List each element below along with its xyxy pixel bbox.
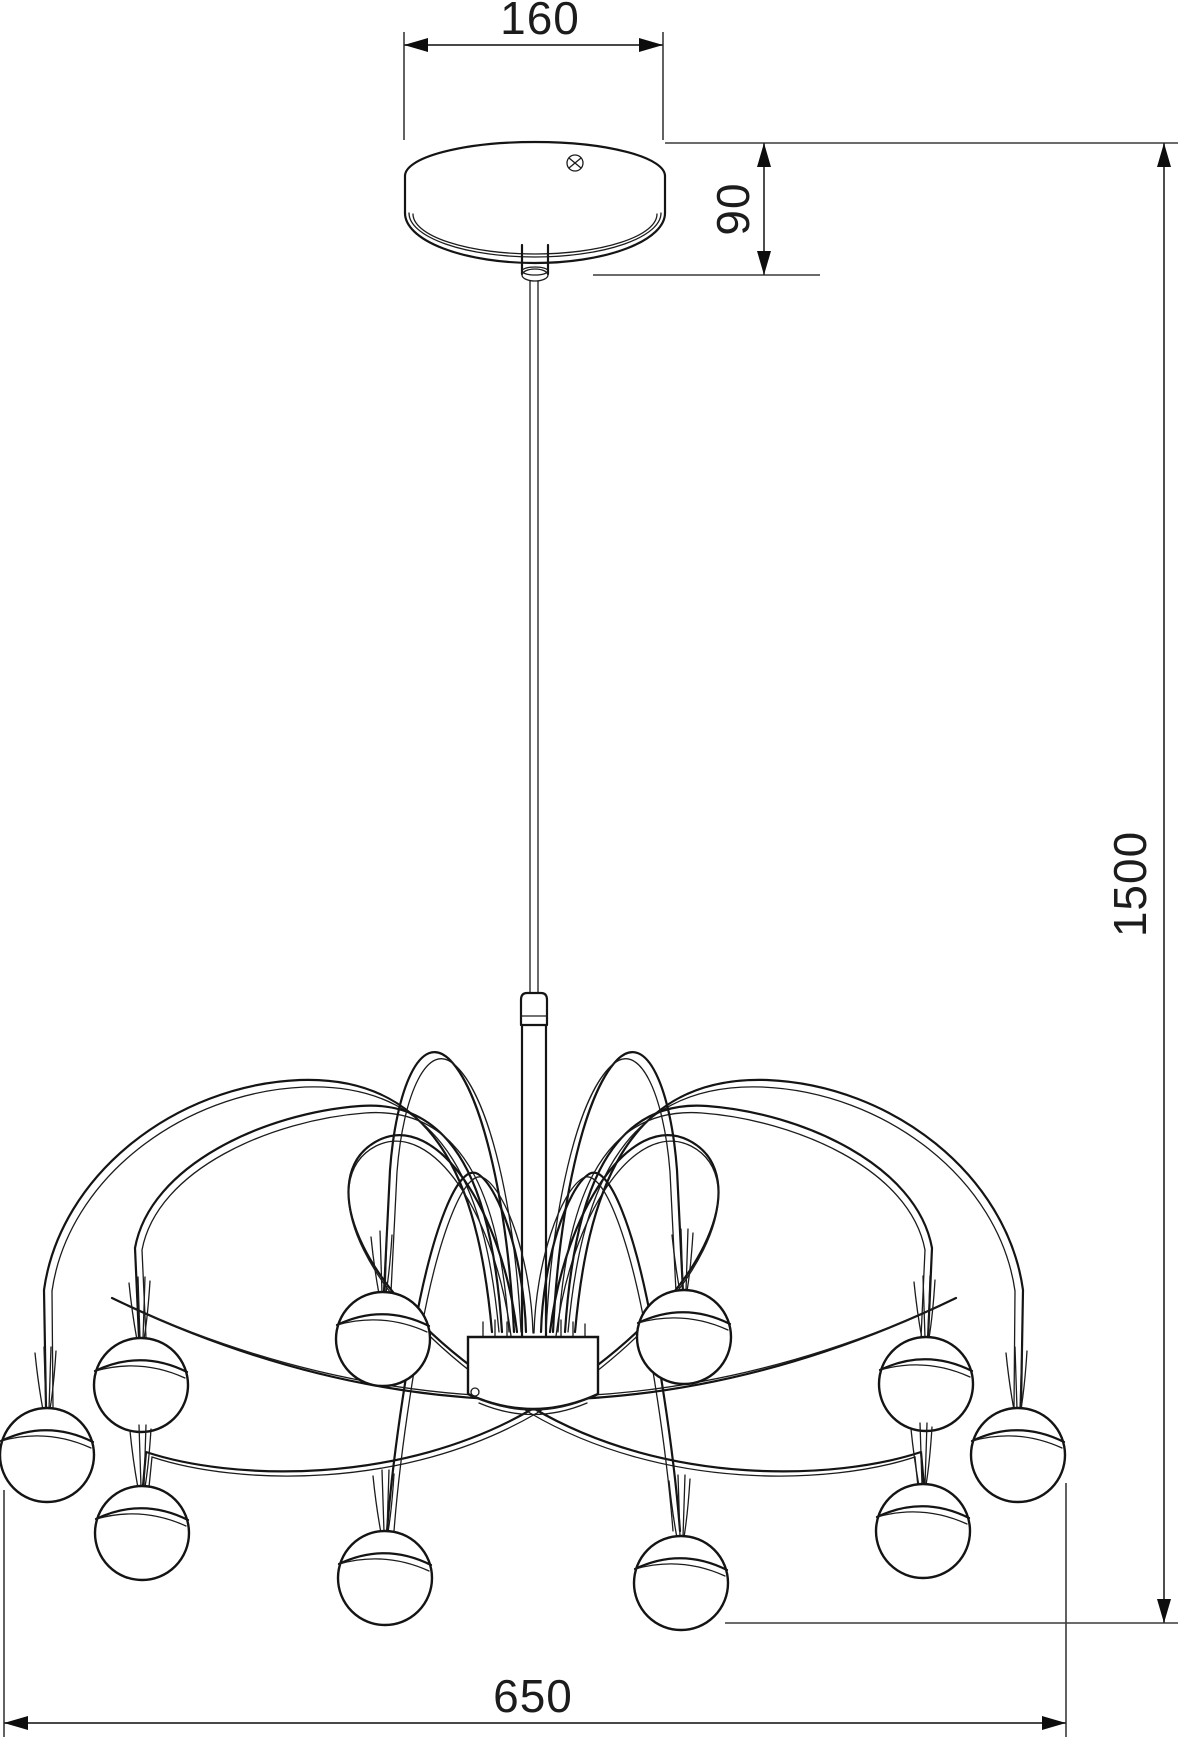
dimension-fixture-width-label: 650 bbox=[493, 1670, 573, 1722]
arrowhead-down-icon bbox=[1157, 1599, 1171, 1623]
suspension-cable bbox=[530, 281, 538, 993]
dimension-canopy-height: 90 bbox=[593, 143, 1178, 275]
arrowhead-left-icon bbox=[4, 1716, 28, 1730]
arrowhead-right-icon bbox=[639, 38, 663, 52]
lamp-ball bbox=[637, 1229, 731, 1384]
dimension-canopy-width: 160 bbox=[404, 0, 663, 140]
lamp-ball bbox=[95, 1425, 189, 1580]
lamp-ball bbox=[0, 1347, 94, 1502]
central-hub bbox=[468, 1337, 598, 1415]
dimension-canopy-height-label: 90 bbox=[707, 182, 759, 235]
chandelier-drawing-canvas: 160 90 1500 650 bbox=[0, 0, 1178, 1737]
lamp-ball bbox=[634, 1475, 728, 1630]
lamp-ball bbox=[876, 1423, 970, 1578]
stem-rod bbox=[522, 1025, 546, 1337]
lamp-ball bbox=[338, 1470, 432, 1625]
dimension-overall-height-label: 1500 bbox=[1104, 831, 1156, 937]
arrowhead-right-icon bbox=[1042, 1716, 1066, 1730]
ceiling-canopy bbox=[405, 142, 665, 281]
dimension-canopy-width-label: 160 bbox=[500, 0, 580, 44]
cable-connector bbox=[521, 993, 547, 1025]
arrowhead-down-icon bbox=[757, 251, 771, 275]
lamp-ball bbox=[879, 1276, 973, 1431]
arrowhead-up-icon bbox=[1157, 143, 1171, 167]
dimensional-drawing: 160 90 1500 650 bbox=[0, 0, 1178, 1737]
arrowhead-left-icon bbox=[404, 38, 428, 52]
lamp-ball bbox=[971, 1347, 1065, 1502]
arrowhead-up-icon bbox=[757, 143, 771, 167]
lamp-ball bbox=[336, 1231, 430, 1386]
arm-arcs bbox=[44, 1052, 1023, 1531]
screw-icon bbox=[567, 155, 583, 171]
lamp-balls bbox=[0, 1229, 1065, 1630]
lamp-ball bbox=[94, 1277, 188, 1432]
